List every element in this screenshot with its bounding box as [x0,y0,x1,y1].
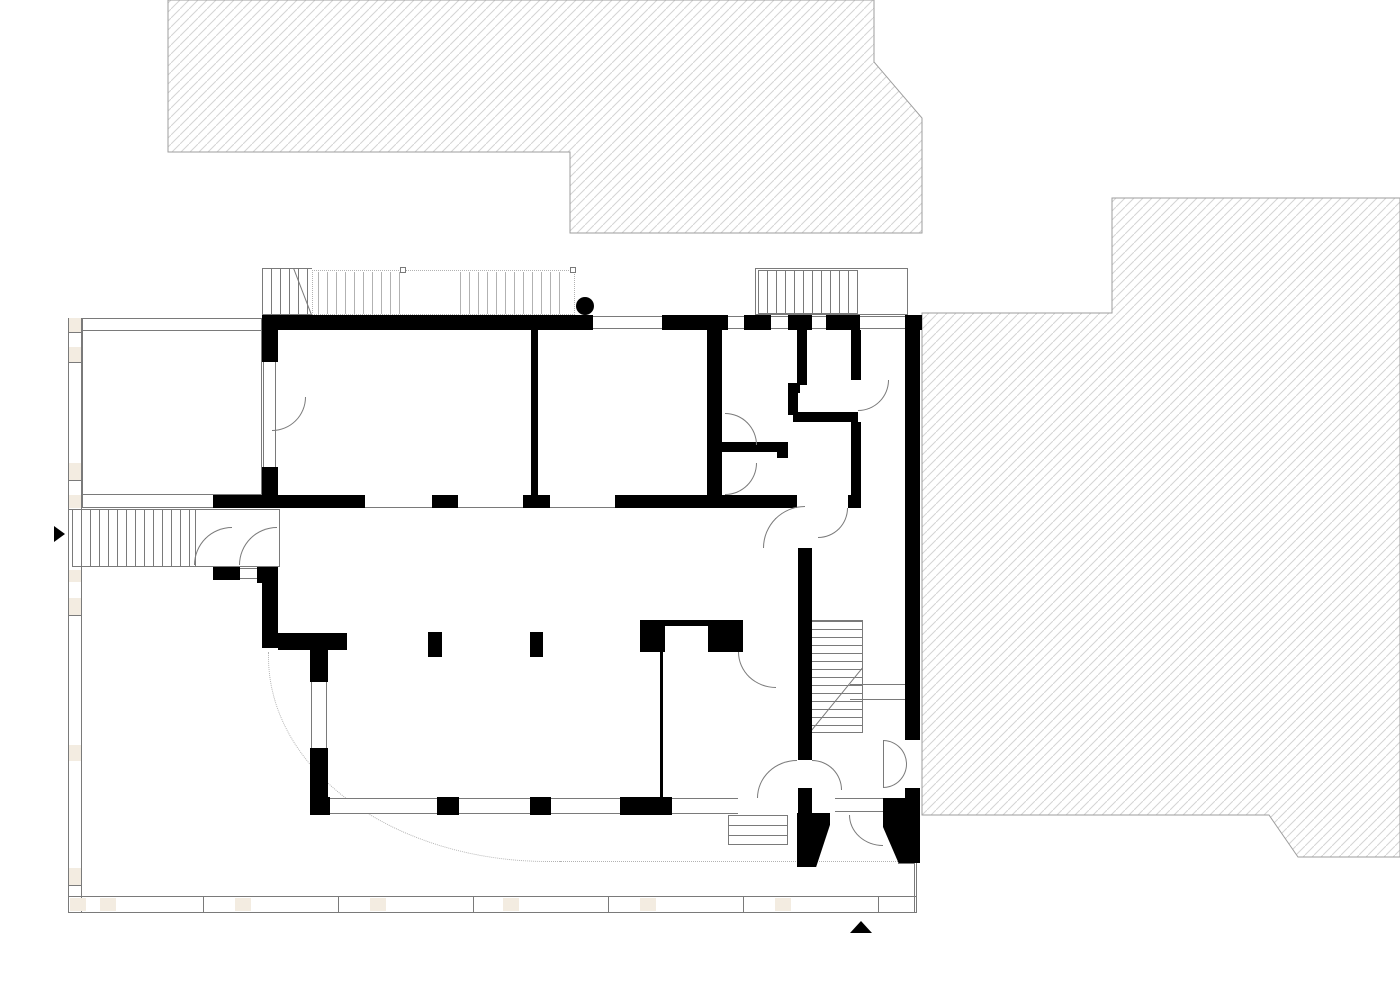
window [311,682,327,748]
wall-segment [905,788,920,815]
boundary-post [640,898,656,911]
pillar [530,632,543,657]
boundary-post [70,898,86,911]
wall-segment [262,330,278,362]
wall-segment [905,330,920,740]
wall-segment [744,315,771,330]
wall-segment [788,315,812,330]
rear-porch-stair [758,270,858,314]
upper-stair-dotted-treads [460,272,568,314]
boundary-post [370,898,386,911]
window [459,798,530,814]
garden-step-line [728,825,788,826]
boundary-post [69,318,81,332]
wall-segment [523,495,550,508]
window [551,798,620,814]
neighbor-building-east [922,198,1400,857]
wall-segment [310,748,328,798]
wall-segment [883,798,907,815]
boundary-tick [878,896,879,913]
entry-sill [240,568,257,579]
wall-segment [262,567,278,648]
niche-opening [665,626,708,652]
upper-stair-dotted-treads [318,272,404,314]
wall-segment [620,797,672,815]
neighbor-building-north [168,0,922,233]
boundary-post [69,745,81,761]
wall-segment [797,330,807,385]
boundary-tick [473,896,474,913]
boundary-post [69,570,81,582]
site-boundary-corner-right [914,863,917,913]
upper-stair-solid [262,268,312,315]
canopy-outline [560,861,898,862]
boundary-post [503,898,519,911]
boundary-tick [68,362,82,363]
wall-segment [848,495,861,508]
wall-segment [213,495,262,508]
window [672,798,738,814]
boundary-tick [203,896,204,913]
north-arrow [850,921,872,933]
window [593,316,662,329]
wall-segment [310,650,328,682]
boundary-tick [68,332,82,333]
entry-arrow [54,526,65,542]
boundary-post [69,463,81,480]
window [812,316,826,329]
floor-plan-canvas [0,0,1400,990]
wall-segment [826,315,860,330]
wall-segment [788,383,800,393]
boundary-post [69,868,81,885]
wall-segment [662,315,728,330]
window [771,316,788,329]
boundary-post [235,898,251,911]
boundary-post [69,495,81,508]
wall-segment [793,412,858,422]
boundary-tick [743,896,744,913]
garden-steps [728,815,788,845]
wall-segment [530,797,551,815]
column-marker [576,297,594,315]
boundary-tick [68,885,82,886]
boundary-tick [338,896,339,913]
wall-soffit-line [365,507,432,508]
wall-segment [310,797,330,815]
pillar [428,632,442,657]
wall-segment [213,567,240,580]
wall-segment [777,445,788,458]
window [728,316,744,329]
boundary-tick [608,896,609,913]
boundary-post [69,598,81,615]
wall-segment [851,422,861,495]
wall-segment [262,495,365,508]
edge-line [898,863,915,864]
wall-segment [707,330,722,508]
wall-segment [615,495,797,508]
boundary-post [100,898,116,911]
wall-soffit-line [548,507,615,508]
partition-wall [660,652,663,797]
garden-step-line [728,835,788,836]
boundary-post [69,347,81,362]
window [330,798,437,814]
wall-segment [278,633,347,650]
wall-segment [798,548,812,760]
entry-stair [72,509,195,567]
entrance-sidelight [835,798,883,812]
wall-soffit-line [458,507,523,508]
wall-segment [798,788,812,815]
wall-segment [262,315,593,330]
boundary-tick [68,615,82,616]
wall-segment [905,315,922,330]
wall-segment [432,495,458,508]
porch-door-glazing [860,316,905,329]
wall-segment [437,797,459,815]
boundary-tick [68,480,82,481]
boundary-post [775,898,791,911]
terrace-inner-line [82,330,262,331]
door-leaf [883,740,884,788]
terrace [82,318,262,508]
wall-segment [531,330,538,495]
wall-segment [851,330,861,380]
stair-marker [400,267,406,273]
stair-rail [850,684,905,700]
stair-marker [570,267,576,273]
